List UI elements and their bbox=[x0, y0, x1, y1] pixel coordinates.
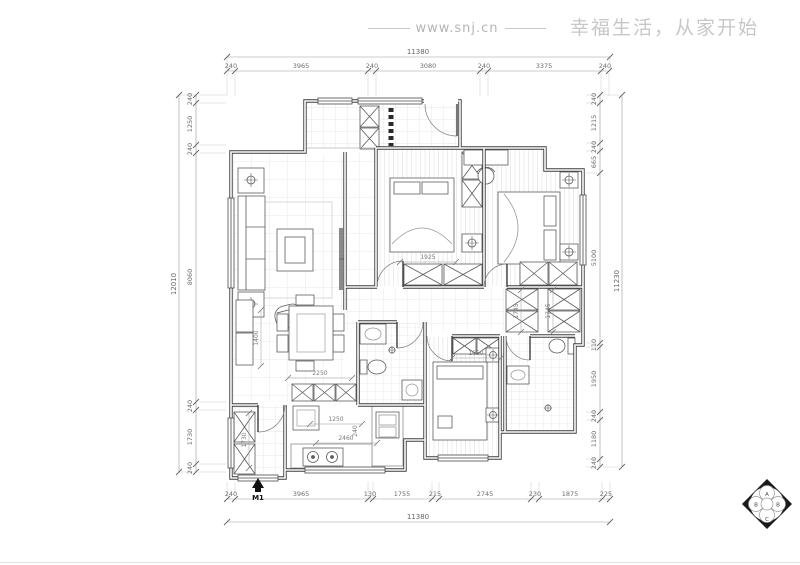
sofa bbox=[238, 196, 265, 290]
pillow bbox=[544, 196, 556, 226]
toilet-tank bbox=[360, 360, 367, 374]
floor-plan-page: www.snj.cn 幸福生活，从家开始 bbox=[0, 0, 800, 565]
logo-letter: C bbox=[765, 517, 769, 523]
dim-label: 130 bbox=[364, 490, 376, 498]
toilet-icon bbox=[549, 339, 565, 353]
dim-label: 240 bbox=[352, 425, 359, 437]
entry-marker: M1 bbox=[252, 478, 264, 502]
window bbox=[318, 98, 352, 104]
dim-label: 225 bbox=[600, 490, 612, 498]
dim-label: 240 bbox=[225, 490, 237, 498]
window bbox=[438, 455, 488, 461]
dim-label: 1950 bbox=[590, 371, 598, 388]
basin bbox=[365, 328, 381, 340]
entry-porch-floor bbox=[306, 103, 458, 147]
dim-label: 1745 bbox=[513, 303, 520, 318]
dim-label: 240 bbox=[186, 143, 194, 155]
dim-label: 1755 bbox=[394, 490, 411, 498]
dim-label: 11230 bbox=[613, 270, 621, 292]
entry-marker-label: M1 bbox=[252, 494, 264, 502]
logo-letter: A bbox=[765, 492, 769, 498]
chair bbox=[277, 335, 288, 352]
dimension-right: 11230 240 1215 240 665 5100 110 1950 240… bbox=[586, 92, 625, 470]
dim-label: 1400 bbox=[253, 330, 260, 345]
window bbox=[305, 467, 385, 473]
dim-label: 3080 bbox=[420, 62, 437, 70]
dim-label: 240 bbox=[590, 457, 598, 469]
basin bbox=[511, 370, 525, 380]
pillow bbox=[394, 182, 420, 194]
logo-letter: B bbox=[754, 503, 758, 509]
window bbox=[228, 418, 234, 468]
dim-label: 3375 bbox=[536, 62, 553, 70]
pillow bbox=[437, 366, 483, 379]
dim-label: 5100 bbox=[590, 250, 598, 267]
dim-label: 240 bbox=[366, 62, 378, 70]
dim-label: 240 bbox=[186, 93, 194, 105]
chair bbox=[333, 335, 344, 352]
fridge-inner bbox=[297, 410, 315, 426]
dim-label: 11380 bbox=[407, 513, 429, 521]
chair bbox=[296, 361, 314, 371]
pillow bbox=[422, 182, 448, 194]
dim-label: 1745 bbox=[545, 303, 552, 318]
sideboard bbox=[236, 300, 253, 332]
dim-label: 110 bbox=[590, 339, 598, 351]
dim-label: 240 bbox=[590, 93, 598, 105]
dim-label: 1730 bbox=[241, 432, 248, 447]
page-bottom-edge bbox=[0, 562, 800, 563]
dim-label: 1250 bbox=[186, 116, 194, 133]
dim-label: 240 bbox=[186, 400, 194, 412]
dim-label: 240 bbox=[590, 141, 598, 153]
dim-label: 240 bbox=[590, 410, 598, 422]
company-logo: A B B C bbox=[742, 479, 792, 529]
dim-label: 240 bbox=[478, 62, 490, 70]
dim-label: 240 bbox=[186, 462, 194, 474]
dim-label: 11380 bbox=[407, 48, 429, 56]
dim-label: 1925 bbox=[420, 254, 435, 261]
chair bbox=[296, 295, 314, 305]
entry-arrow-base bbox=[255, 488, 261, 492]
chair bbox=[333, 314, 344, 331]
desk-chair bbox=[478, 168, 494, 184]
entry-door-gap bbox=[424, 97, 458, 105]
washing-machine-drum bbox=[406, 384, 418, 396]
dim-label: 8060 bbox=[186, 269, 194, 286]
dim-label: 1180 bbox=[590, 431, 598, 448]
dim-label: 2250 bbox=[312, 370, 327, 377]
dining-table-inner bbox=[297, 314, 325, 352]
dim-label: 1875 bbox=[562, 490, 579, 498]
dim-label: 240 bbox=[599, 62, 611, 70]
dim-label: 12010 bbox=[170, 273, 178, 295]
hall-floor bbox=[346, 152, 376, 287]
dim-label: 1215 bbox=[590, 115, 598, 132]
pillow bbox=[544, 230, 556, 260]
chair bbox=[277, 314, 288, 331]
window bbox=[228, 198, 234, 288]
dim-label: 240 bbox=[225, 62, 237, 70]
toilet-icon bbox=[368, 360, 386, 374]
folded-blanket bbox=[438, 416, 452, 428]
dim-label: 1250 bbox=[328, 416, 343, 423]
dim-label: 1730 bbox=[186, 429, 194, 446]
dimension-bottom: 11380 240 3965 130 1755 215 2745 230 187… bbox=[224, 482, 613, 525]
dim-label: 665 bbox=[590, 156, 598, 168]
sideboard bbox=[236, 333, 253, 365]
sink-bowl bbox=[379, 415, 396, 425]
logo-letter: B bbox=[776, 503, 780, 509]
dimension-left: 12010 240 1250 240 8060 240 1730 240 bbox=[170, 92, 226, 475]
window bbox=[358, 98, 422, 104]
dim-label: 1650 bbox=[468, 350, 483, 357]
dim-label: 3965 bbox=[293, 490, 310, 498]
dim-label: 230 bbox=[529, 490, 541, 498]
dim-label: 215 bbox=[429, 490, 441, 498]
desk bbox=[464, 150, 508, 165]
sink-bowl bbox=[379, 427, 396, 437]
floor-plan-drawing: 11380 240 3965 240 3080 240 3375 240 113… bbox=[0, 0, 800, 565]
dimension-top: 11380 240 3965 240 3080 240 3375 240 bbox=[224, 48, 613, 96]
coffee-table-inner bbox=[285, 237, 305, 263]
dim-label: 2745 bbox=[477, 490, 494, 498]
dim-label: 3965 bbox=[293, 62, 310, 70]
window bbox=[580, 195, 586, 265]
